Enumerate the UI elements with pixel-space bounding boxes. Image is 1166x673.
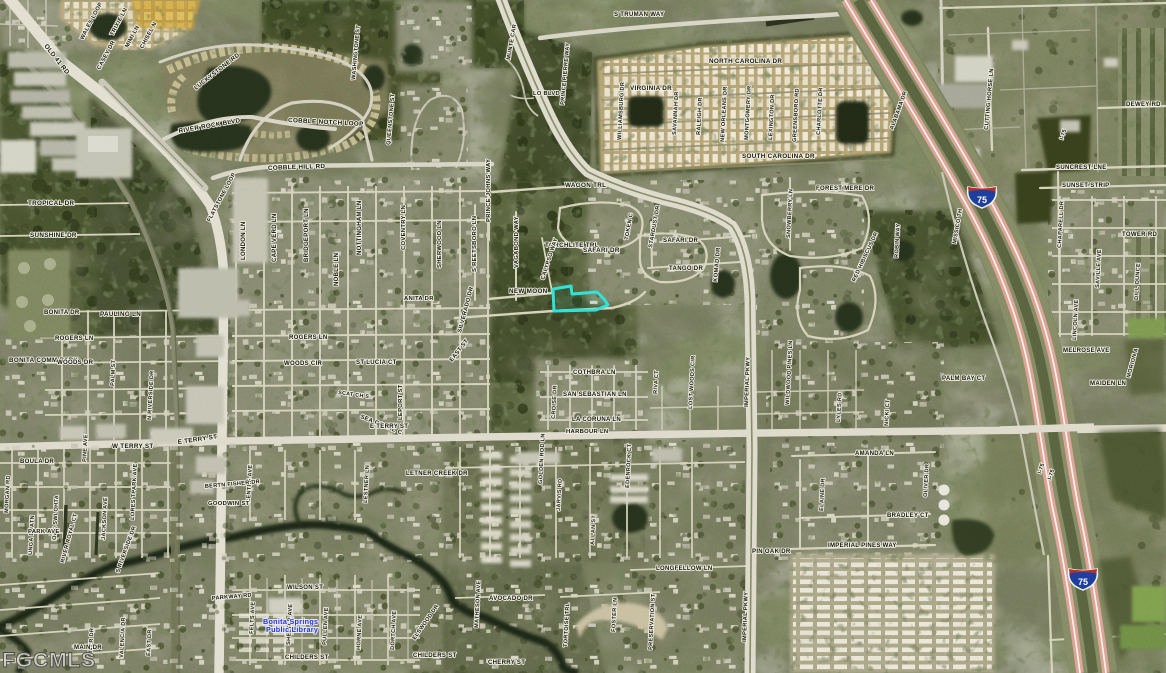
svg-text:DEWEY RD: DEWEY RD <box>1126 102 1161 108</box>
svg-text:PALM BAY CT: PALM BAY CT <box>942 376 985 382</box>
svg-text:VAGABOND WAY: VAGABOND WAY <box>514 216 520 268</box>
svg-text:SAN SEBASTIAN LN: SAN SEBASTIAN LN <box>563 392 627 398</box>
svg-text:W TERRY ST: W TERRY ST <box>112 443 154 450</box>
svg-text:WOODS DR: WOODS DR <box>57 360 94 366</box>
svg-text:CHILDERS ST: CHILDERS ST <box>413 653 457 659</box>
svg-text:ROGERS LN: ROGERS LN <box>55 336 94 342</box>
svg-text:SUNSET STRIP: SUNSET STRIP <box>1062 183 1110 189</box>
svg-text:NOBLE LN: NOBLE LN <box>334 253 340 286</box>
svg-text:SAFARI DR: SAFARI DR <box>663 238 699 244</box>
svg-text:CAPE VERD LN: CAPE VERD LN <box>272 213 278 262</box>
svg-text:LONGFELLOW LN: LONGFELLOW LN <box>656 566 713 572</box>
svg-text:TROPICAL DR: TROPICAL DR <box>28 200 74 207</box>
svg-text:LA CORUNA LN: LA CORUNA LN <box>572 417 621 423</box>
svg-text:PARK AVE: PARK AVE <box>28 529 60 535</box>
svg-text:IMPERIAL PINES WAY: IMPERIAL PINES WAY <box>828 543 897 549</box>
svg-text:WAGON TRL: WAGON TRL <box>565 182 606 189</box>
svg-text:SHERWOOD LN: SHERWOOD LN <box>437 220 443 268</box>
svg-text:ROGERS LN: ROGERS LN <box>289 335 328 341</box>
svg-text:AVOCADO DR: AVOCADO DR <box>489 596 533 602</box>
svg-text:CHILDERS ST: CHILDERS ST <box>285 655 329 661</box>
svg-text:PRINCE JOHNS WAY: PRINCE JOHNS WAY <box>486 159 492 222</box>
svg-text:RIVA CT: RIVA CT <box>653 370 660 394</box>
svg-text:SUNCREST LNE: SUNCREST LNE <box>1056 165 1107 171</box>
svg-text:BOULA DR: BOULA DR <box>20 459 54 465</box>
svg-text:ANITA DR: ANITA DR <box>404 296 434 302</box>
svg-text:ST LUCIA CT: ST LUCIA CT <box>356 360 397 366</box>
svg-text:NOTTINGHAM LN: NOTTINGHAM LN <box>357 201 363 256</box>
svg-text:Public Library: Public Library <box>266 625 318 634</box>
svg-text:CHERRY ST: CHERRY ST <box>488 660 525 666</box>
svg-text:PAULING LN: PAULING LN <box>100 311 141 318</box>
svg-text:HARBOUR LN: HARBOUR LN <box>566 429 608 435</box>
svg-text:75: 75 <box>1078 577 1088 587</box>
svg-text:LONDON LN: LONDON LN <box>241 221 247 260</box>
svg-text:TOWER RD: TOWER RD <box>1122 232 1157 238</box>
svg-text:WILSON ST: WILSON ST <box>287 585 323 591</box>
svg-text:WOODS CIR: WOODS CIR <box>284 361 323 367</box>
svg-text:S REETSBORO LN: S REETSBORO LN <box>472 216 478 272</box>
svg-text:SOUTH CAROLINA DR: SOUTH CAROLINA DR <box>742 153 815 160</box>
svg-text:BONITA DR: BONITA DR <box>44 310 80 316</box>
svg-text:VIRGINIA DR: VIRGINIA DR <box>630 85 672 92</box>
svg-text:GOODWIN ST: GOODWIN ST <box>208 501 250 507</box>
svg-text:SAFARI DR: SAFARI DR <box>583 247 620 254</box>
svg-text:MELROSE AVE: MELROSE AVE <box>1063 348 1110 354</box>
svg-text:TANGO DR: TANGO DR <box>669 266 703 272</box>
svg-text:BRADLEY CT: BRADLEY CT <box>887 513 929 519</box>
svg-text:BRIDGEPORT LN: BRIDGEPORT LN <box>304 208 310 262</box>
svg-text:LO BLVD: LO BLVD <box>533 91 560 97</box>
svg-text:S TRUMAN WAY: S TRUMAN WAY <box>614 12 664 18</box>
svg-text:LEPORT ST: LEPORT ST <box>398 384 404 420</box>
svg-text:COVENTRY LN: COVENTRY LN <box>401 205 407 250</box>
svg-text:PIN OAK DR: PIN OAK DR <box>752 549 791 555</box>
svg-text:NEW MOON: NEW MOON <box>509 288 548 295</box>
svg-text:FOREST MERE DR: FOREST MERE DR <box>816 186 874 192</box>
svg-text:COTHBRA LN: COTHBRA LN <box>573 370 616 376</box>
svg-text:SUNSHINE DR: SUNSHINE DR <box>30 232 77 239</box>
svg-text:FGCMLS: FGCMLS <box>2 648 96 672</box>
svg-text:MAIDEN LN: MAIDEN LN <box>1090 381 1126 387</box>
svg-text:AMANDA LN: AMANDA LN <box>855 451 894 457</box>
svg-text:NORTH CAROLINA DR: NORTH CAROLINA DR <box>709 58 782 65</box>
svg-text:E TERRY ST: E TERRY ST <box>370 424 408 430</box>
svg-text:LETNER CREEK DR: LETNER CREEK DR <box>406 471 468 477</box>
svg-text:75: 75 <box>977 195 987 205</box>
